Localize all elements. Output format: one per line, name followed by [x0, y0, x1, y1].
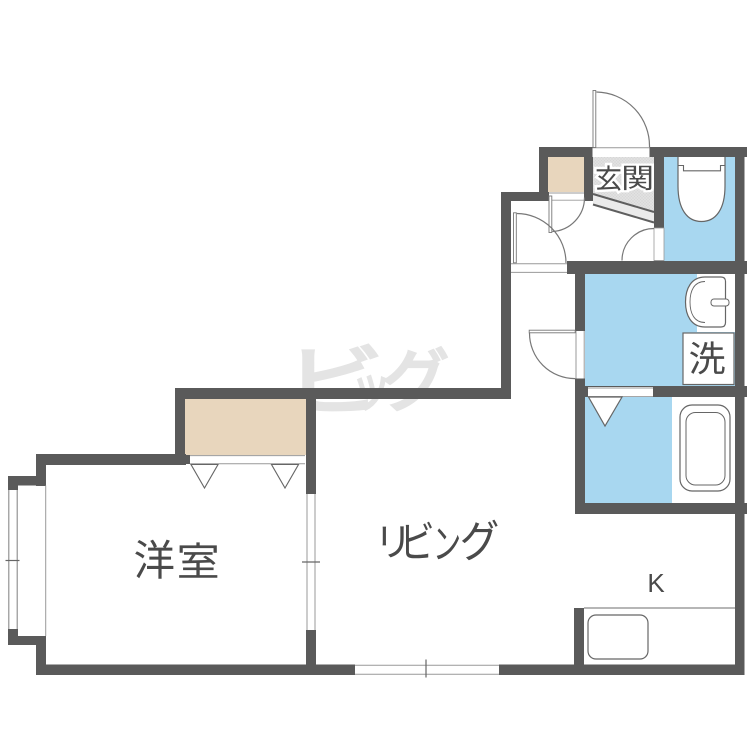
svg-text:K: K	[647, 568, 665, 598]
